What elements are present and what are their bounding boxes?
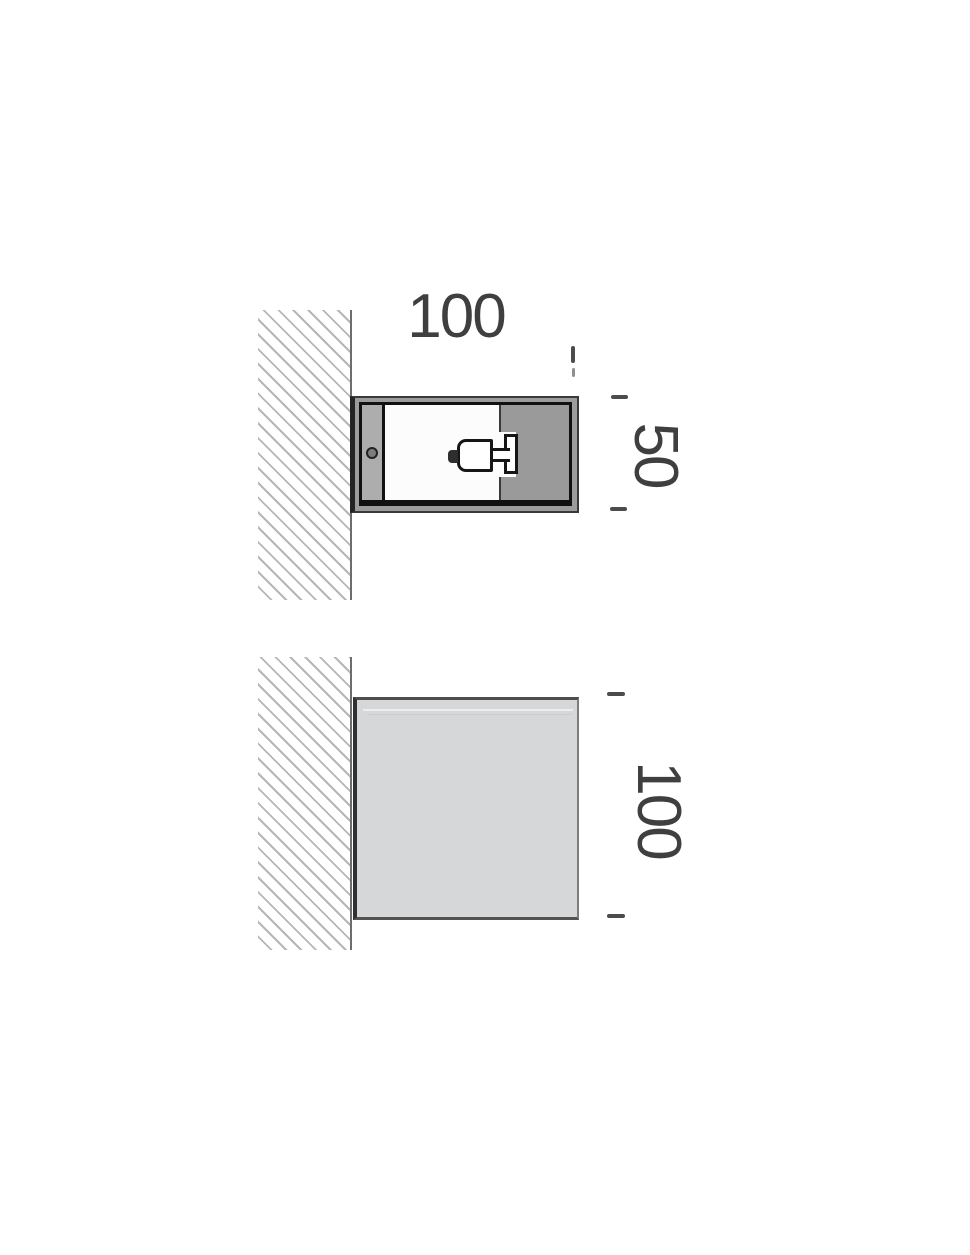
dimension-tick: [607, 692, 625, 696]
lamp-tip: [448, 450, 458, 463]
dimension-tick: [607, 914, 625, 918]
lamp-bulb-icon: [457, 439, 493, 472]
luminaire-dimension-drawing: 100 50 100: [0, 0, 970, 1255]
dimension-label-height: 100: [588, 740, 728, 880]
wall-hatch-front-view: [258, 657, 352, 950]
front-view: 100: [0, 0, 970, 1255]
face-shadow-line: [367, 714, 571, 715]
fixture-face-front-view: [353, 697, 579, 920]
face-highlight-line: [363, 709, 573, 711]
lamp-neck: [490, 448, 510, 462]
